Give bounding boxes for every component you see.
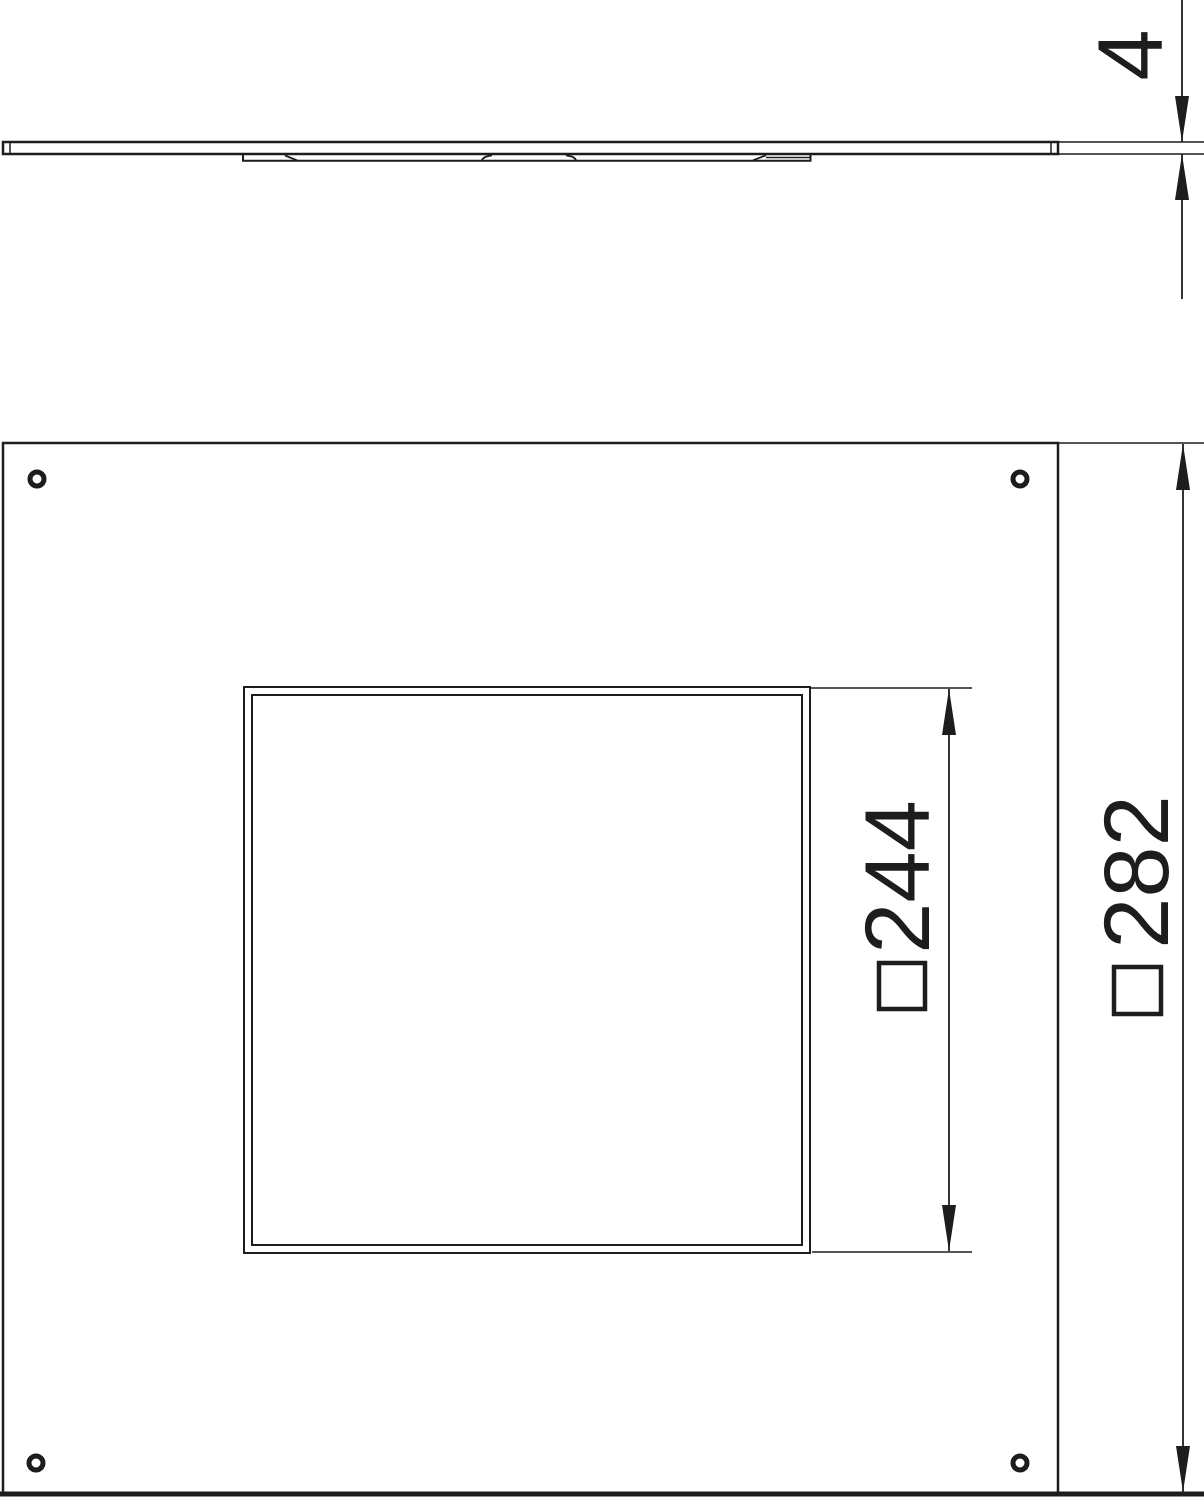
dimension-label-cutout: 244 — [847, 800, 949, 954]
latch-hook-left — [482, 155, 492, 160]
plan-view: 244 282 — [0, 443, 1204, 1494]
technical-drawing: 4 244 282 — [0, 0, 1204, 1500]
dimension-label-overall: 282 — [1086, 795, 1188, 949]
arrowhead-down-icon — [1176, 1446, 1190, 1492]
dimension-label-thickness: 4 — [1080, 29, 1182, 80]
arrowhead-up-icon — [1175, 154, 1189, 200]
square-symbol-icon — [1114, 967, 1161, 1014]
dimension-thickness: 4 — [1058, 0, 1204, 299]
latch-hook-right — [566, 155, 576, 160]
tab-mark-right — [753, 155, 766, 160]
dimension-overall: 282 — [1059, 443, 1204, 1493]
plate-outline — [3, 443, 1058, 1494]
arrowhead-up-icon — [1176, 444, 1190, 490]
plate-profile-outline — [3, 142, 1058, 154]
technical-drawing-sheet: 4 244 282 — [0, 0, 1204, 1500]
tab-mark-left — [285, 156, 297, 161]
arrowhead-down-icon — [1175, 96, 1189, 142]
side-profile-view: 4 — [3, 0, 1204, 299]
